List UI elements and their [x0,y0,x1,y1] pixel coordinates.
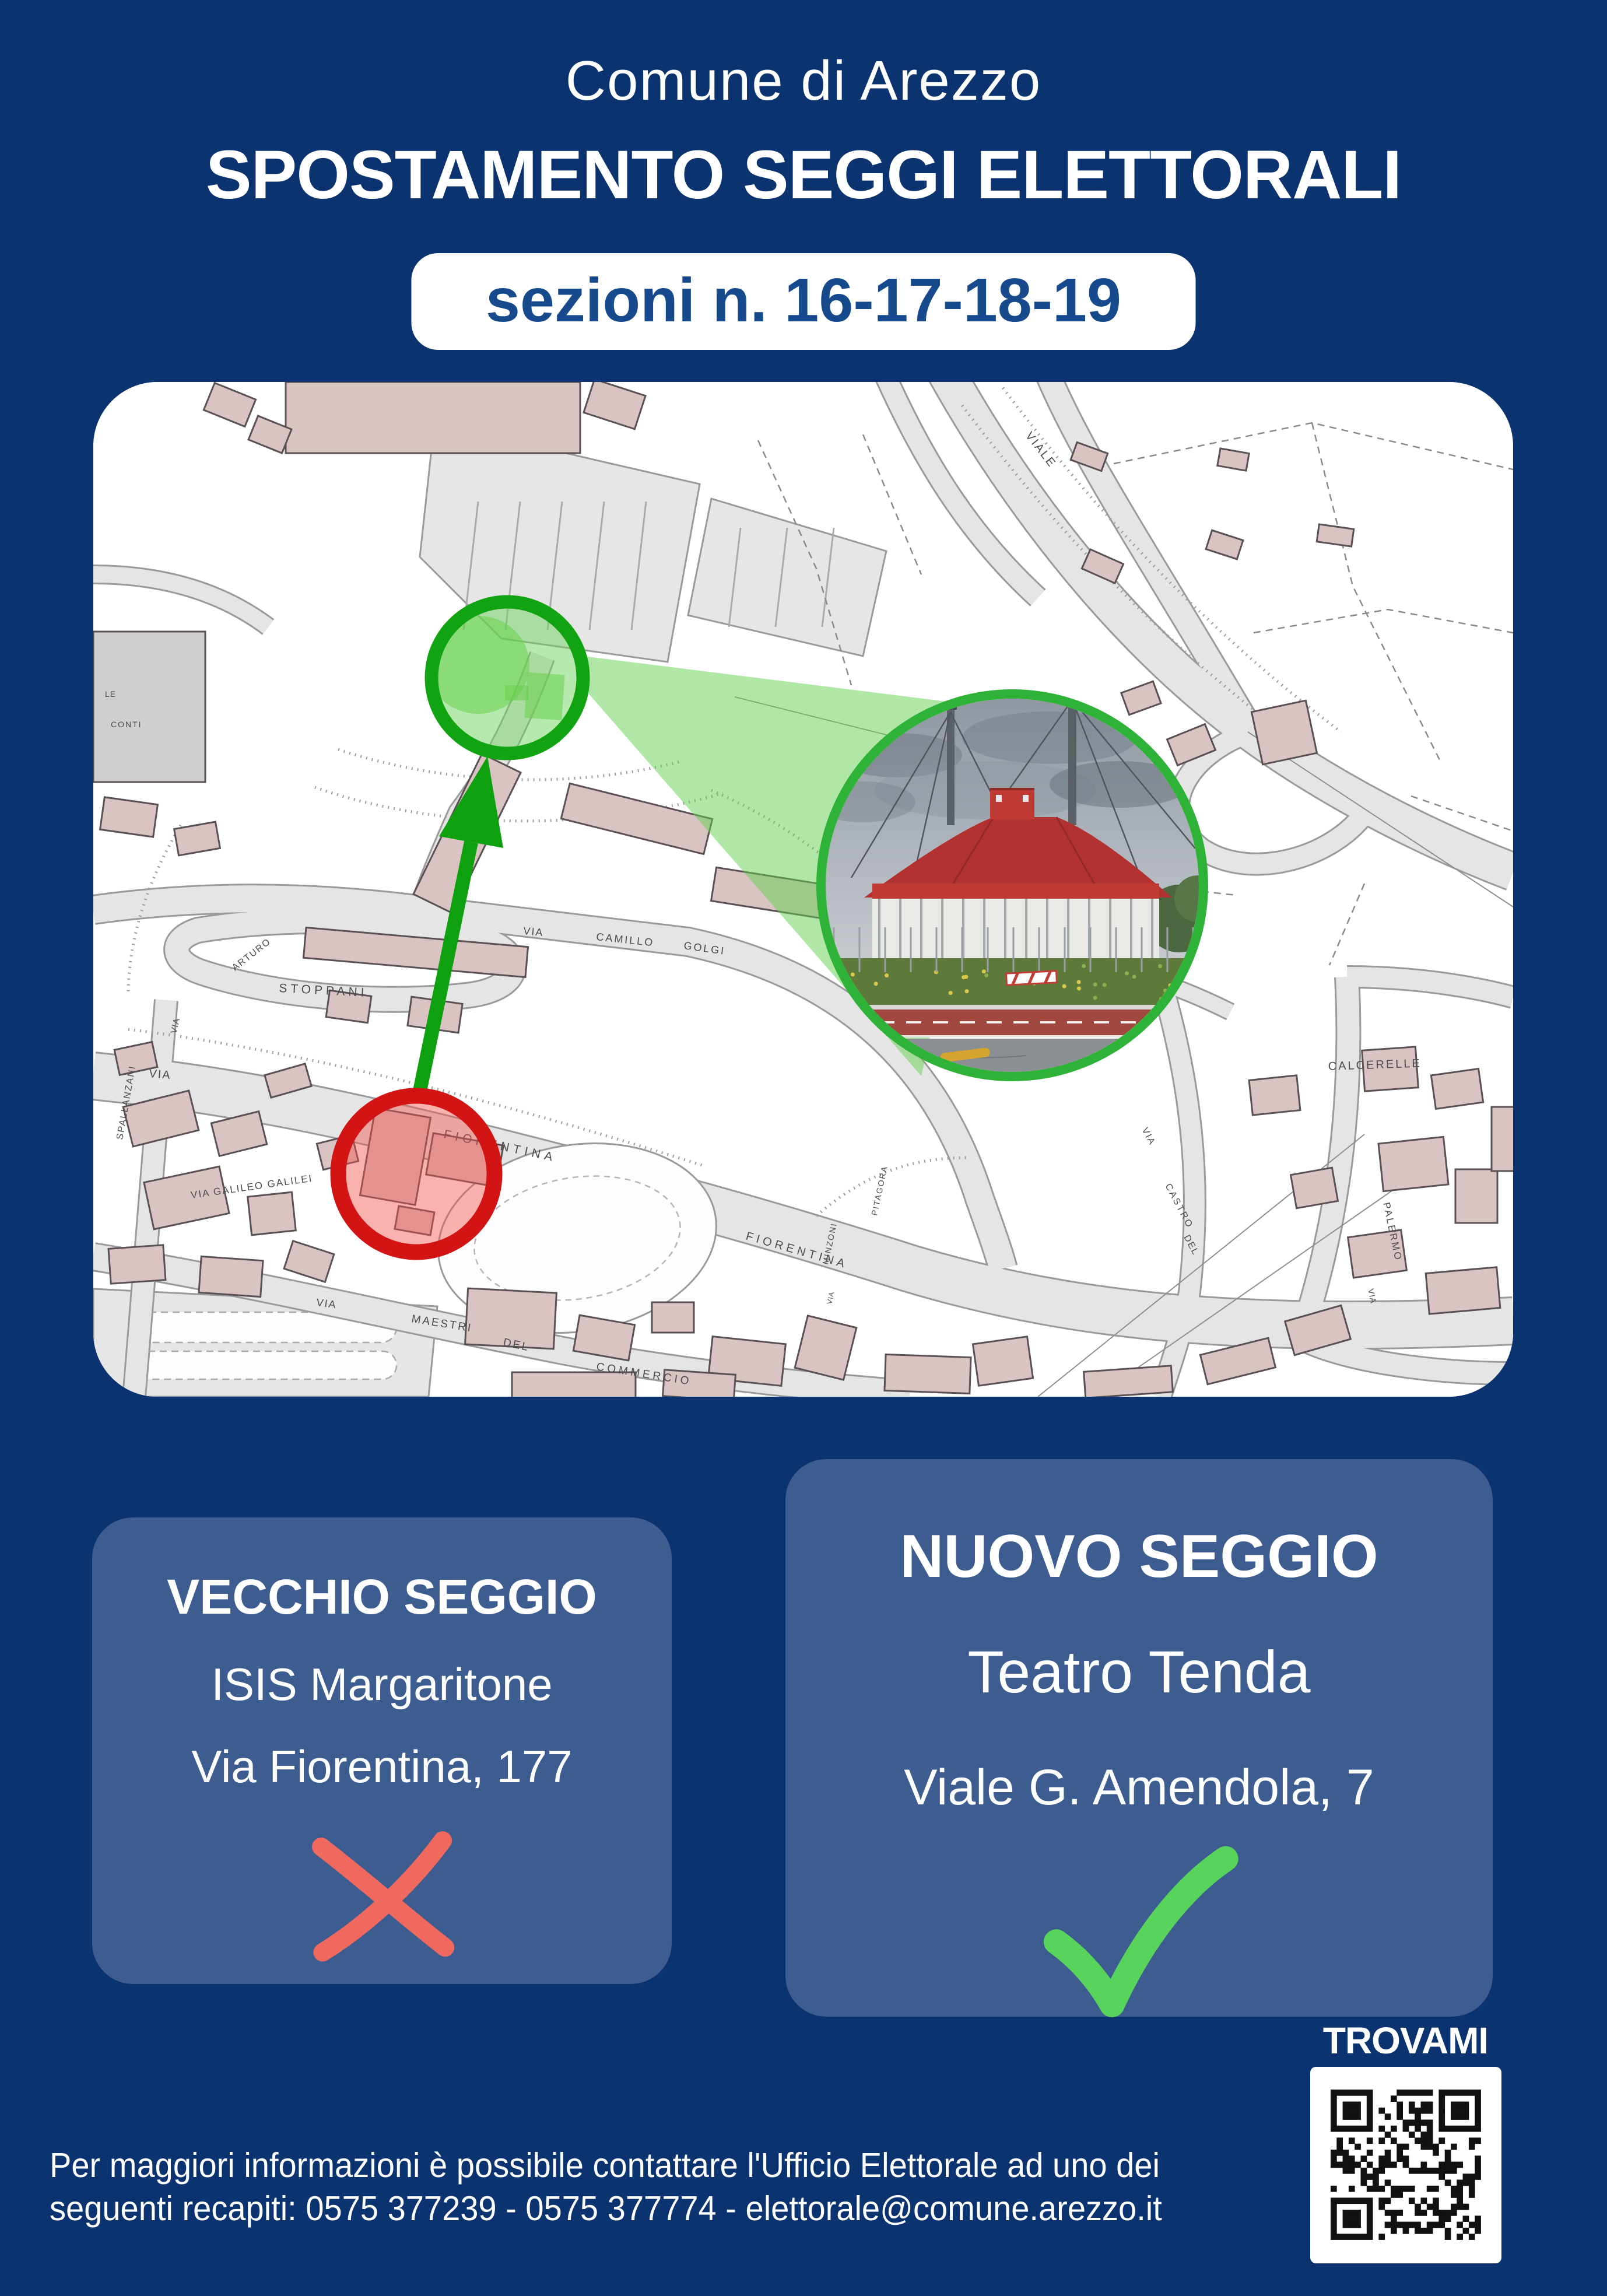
svg-text:LE: LE [105,689,116,699]
new-site-card: NUOVO SEGGIO Teatro Tenda Viale G. Amend… [785,1459,1493,2017]
page-title: SPOSTAMENTO SEGGI ELETTORALI [0,135,1607,215]
x-mark-icon [294,1820,469,1966]
poster-root: Comune di Arezzo SPOSTAMENTO SEGGI ELETT… [0,0,1607,2296]
svg-text:VIA: VIA [149,1067,172,1082]
old-site-card: VECCHIO SEGGIO ISIS Margaritone Via Fior… [92,1517,672,1984]
old-site-title: VECCHIO SEGGIO [92,1569,672,1625]
municipality-title: Comune di Arezzo [0,49,1607,113]
svg-text:VIA: VIA [523,925,545,938]
new-site-title: NUOVO SEGGIO [785,1522,1493,1592]
new-location-circle [427,602,583,753]
sections-badge: sezioni n. 16-17-18-19 [412,253,1196,350]
old-site-address: Via Fiorentina, 177 [92,1740,672,1793]
new-site-address: Viale G. Amendola, 7 [785,1759,1493,1817]
footer-line1: Per maggiori informazioni è possibile co… [50,2144,1229,2187]
footer-line2: seguenti recapiti: 0575 377239 - 0575 37… [50,2187,1229,2230]
check-mark-icon [1040,1843,1238,2018]
qr-code [1310,2067,1501,2263]
old-site-name: ISIS Margaritone [92,1658,672,1711]
new-site-name: Teatro Tenda [785,1638,1493,1706]
qr-code-pattern [1310,2067,1501,2263]
sections-badge-label: sezioni n. 16-17-18-19 [412,253,1196,348]
footer-text: Per maggiori informazioni è possibile co… [50,2144,1290,2230]
svg-text:VIA: VIA [316,1296,338,1310]
city-map: VIALESTOPPANIVIAFIORENTINAFIORENTINAVIAC… [93,382,1513,1397]
old-location-circle [338,1096,494,1252]
map-container: VIALESTOPPANIVIAFIORENTINAFIORENTINAVIAC… [93,382,1513,1397]
qr-label: TROVAMI [1305,2019,1506,2062]
svg-text:CONTI: CONTI [111,720,142,729]
